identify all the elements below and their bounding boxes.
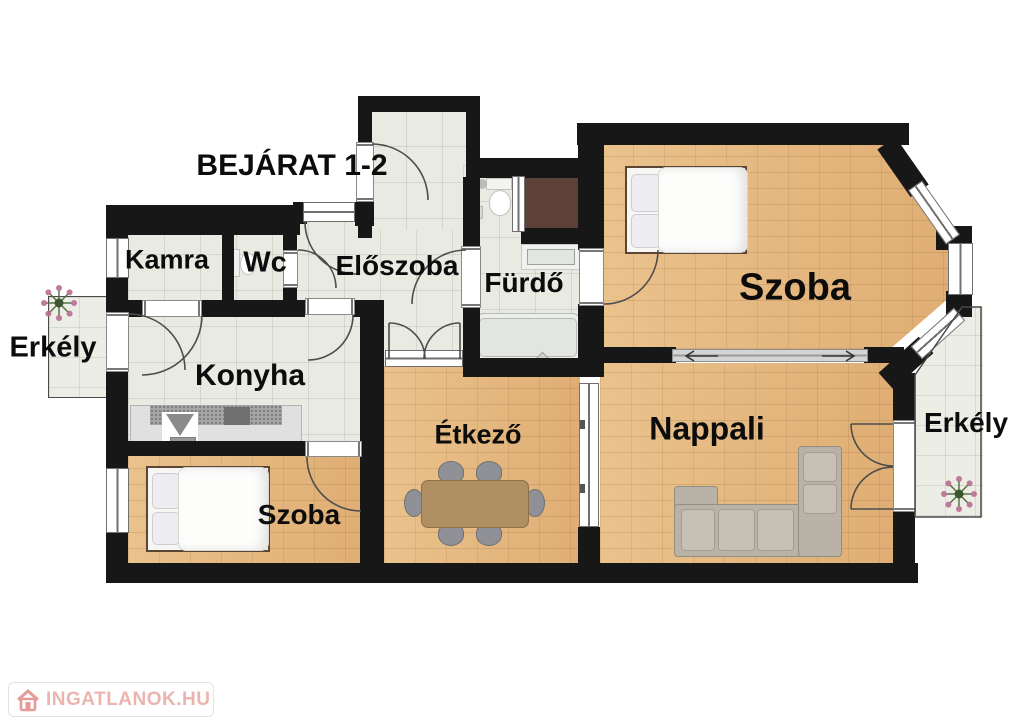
single-bed-icon: [146, 466, 270, 552]
sliding-door: [672, 349, 868, 362]
sofa-cushion-icon: [803, 484, 837, 514]
balcony-left-door: [106, 312, 129, 372]
living-balcony-french-door: [893, 420, 916, 512]
wall-segment: [578, 527, 600, 565]
label-balcony-left: Erkély: [9, 332, 96, 365]
double-bed-icon: [625, 166, 747, 254]
wall-segment: [128, 300, 142, 317]
toilet-icon: [486, 178, 512, 190]
floor-plan: BEJÁRAT 1-2 Kamra Wc Előszoba Fürdő Szob…: [0, 0, 1024, 725]
hall-dining-double-door: [385, 350, 463, 367]
wall-segment: [106, 370, 128, 470]
pillow-icon: [631, 174, 661, 212]
wall-segment: [893, 508, 915, 565]
label-living: Nappali: [649, 411, 765, 448]
wall-segment: [106, 563, 918, 583]
bathtub-icon: [474, 313, 582, 362]
label-bedroom-large: Szoba: [739, 267, 851, 310]
label-hall: Előszoba: [336, 250, 459, 282]
hall-kitchen-door: [305, 298, 355, 315]
label-wc: Wc: [243, 247, 287, 280]
wall-segment: [360, 300, 384, 563]
duvet-icon: [178, 467, 269, 551]
sofa-cushion-icon: [757, 509, 794, 551]
wall-segment: [106, 276, 128, 314]
pillow-icon: [631, 214, 661, 248]
sofa-cushion-icon: [681, 509, 715, 551]
wall-segment: [108, 205, 300, 235]
pantry-door: [142, 300, 202, 317]
partition-handle-icon: [580, 484, 585, 493]
bathroom-door: [461, 246, 481, 308]
wall-segment: [222, 235, 234, 302]
label-kitchen: Konyha: [195, 359, 305, 393]
pillow-icon: [152, 473, 180, 509]
wall-segment: [106, 205, 128, 240]
dining-table-icon: [421, 480, 529, 528]
wall-segment: [283, 286, 297, 302]
bedroom-small-window: [106, 468, 129, 533]
wall-segment: [128, 441, 307, 456]
sink-icon: [166, 414, 194, 436]
wall-segment: [463, 306, 480, 360]
bay-window-center: [948, 243, 973, 295]
watermark: INGATLANOK.HU: [8, 682, 214, 717]
partition-handle-icon: [580, 420, 585, 429]
wall-segment: [521, 228, 583, 244]
pillow-icon: [152, 512, 180, 545]
wall-segment: [600, 347, 676, 363]
wall-segment: [577, 123, 909, 145]
entrance-door-2: [303, 202, 355, 222]
kitchen-bedroom-door: [305, 441, 362, 457]
label-pantry: Kamra: [125, 245, 209, 276]
wall-segment: [463, 177, 480, 248]
bathroom-bedroom-door: [579, 248, 604, 306]
label-entrance: BEJÁRAT 1-2: [196, 149, 387, 183]
sofa-cushion-icon: [718, 509, 755, 551]
washbasin-icon: [527, 249, 575, 265]
wall-segment: [358, 96, 372, 146]
wall-segment: [200, 300, 305, 317]
label-dining: Étkező: [434, 420, 521, 451]
toilet-icon: [489, 190, 511, 216]
label-bedroom-small: Szoba: [258, 499, 340, 531]
label-balcony-right: Erkély: [924, 407, 1008, 439]
wall-segment: [358, 96, 480, 112]
dining-living-glazed-partition: [579, 383, 599, 527]
watermark-text: INGATLANOK.HU: [46, 689, 210, 711]
sofa-cushion-icon: [803, 452, 837, 482]
stove-icon: [224, 407, 250, 425]
house-icon: [16, 688, 40, 712]
duvet-icon: [658, 167, 748, 253]
wall-segment: [358, 198, 372, 238]
shower-glass-panel: [512, 176, 525, 232]
label-bathroom: Fürdő: [484, 267, 563, 299]
